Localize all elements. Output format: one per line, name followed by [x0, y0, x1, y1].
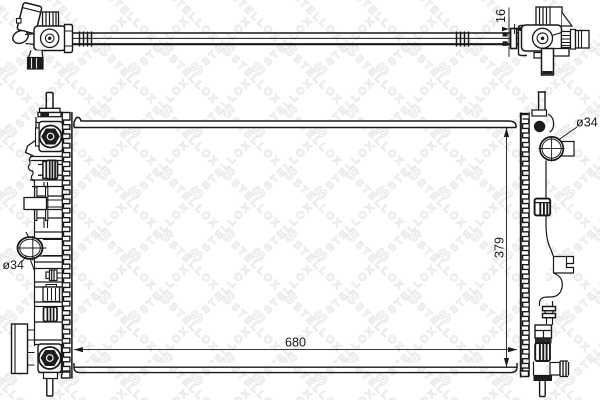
svg-text:STELLOX: STELLOX [324, 324, 379, 379]
svg-text:STELLOX: STELLOX [324, 138, 379, 193]
svg-text:STELLOX: STELLOX [386, 324, 441, 379]
svg-text:STELLOX: STELLOX [200, 324, 255, 379]
svg-text:STELLOX: STELLOX [448, 262, 503, 317]
svg-text:STELLOX: STELLOX [324, 14, 379, 69]
svg-text:STELLOX: STELLOX [0, 200, 6, 255]
svg-text:STELLOX: STELLOX [262, 14, 317, 69]
svg-text:STELLOX: STELLOX [0, 14, 6, 69]
svg-text:STELLOX: STELLOX [76, 138, 131, 193]
svg-text:STELLOX: STELLOX [386, 138, 441, 193]
svg-text:STELLOX: STELLOX [76, 324, 131, 379]
svg-text:STELLOX: STELLOX [138, 138, 193, 193]
svg-text:STELLOX: STELLOX [200, 200, 255, 255]
svg-text:STELLOX: STELLOX [200, 262, 255, 317]
svg-text:STELLOX: STELLOX [138, 262, 193, 317]
svg-text:STELLOX: STELLOX [448, 138, 503, 193]
svg-text:STELLOX: STELLOX [76, 200, 131, 255]
svg-text:STELLOX: STELLOX [386, 14, 441, 69]
svg-text:379: 379 [493, 237, 507, 258]
svg-text:STELLOX: STELLOX [138, 324, 193, 379]
svg-text:STELLOX: STELLOX [76, 262, 131, 317]
svg-text:STELLOX: STELLOX [262, 324, 317, 379]
svg-text:STELLOX: STELLOX [262, 200, 317, 255]
svg-text:STELLOX: STELLOX [200, 14, 255, 69]
svg-text:STELLOX: STELLOX [0, 138, 6, 193]
svg-text:ø34: ø34 [576, 116, 598, 130]
svg-text:STELLOX: STELLOX [262, 262, 317, 317]
svg-text:680: 680 [285, 336, 306, 350]
svg-text:STELLOX: STELLOX [0, 76, 6, 131]
svg-text:16: 16 [494, 9, 508, 23]
svg-text:STELLOX: STELLOX [386, 200, 441, 255]
svg-text:STELLOX: STELLOX [324, 200, 379, 255]
svg-text:STELLOX: STELLOX [138, 14, 193, 69]
svg-text:STELLOX: STELLOX [262, 138, 317, 193]
svg-text:ø34: ø34 [3, 258, 24, 272]
svg-text:STELLOX: STELLOX [200, 138, 255, 193]
svg-text:STELLOX: STELLOX [386, 262, 441, 317]
svg-text:STELLOX: STELLOX [324, 262, 379, 317]
svg-text:STELLOX: STELLOX [448, 324, 503, 379]
svg-text:STELLOX: STELLOX [0, 324, 6, 379]
svg-text:STELLOX: STELLOX [138, 200, 193, 255]
